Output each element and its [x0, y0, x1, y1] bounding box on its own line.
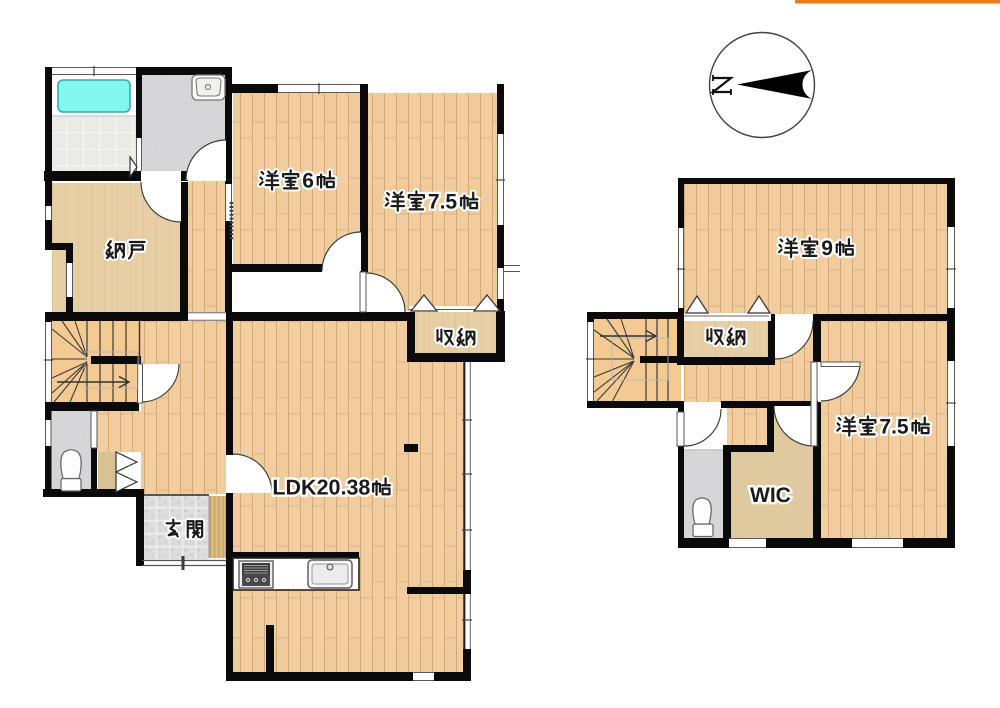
- svg-text:LDK20.38: LDK20.38: [272, 476, 370, 500]
- svg-text:WIC: WIC: [750, 484, 791, 507]
- svg-text:9: 9: [821, 237, 833, 260]
- svg-text:7.5: 7.5: [879, 416, 909, 439]
- svg-text:7.5: 7.5: [428, 191, 458, 214]
- svg-text:6: 6: [302, 170, 314, 193]
